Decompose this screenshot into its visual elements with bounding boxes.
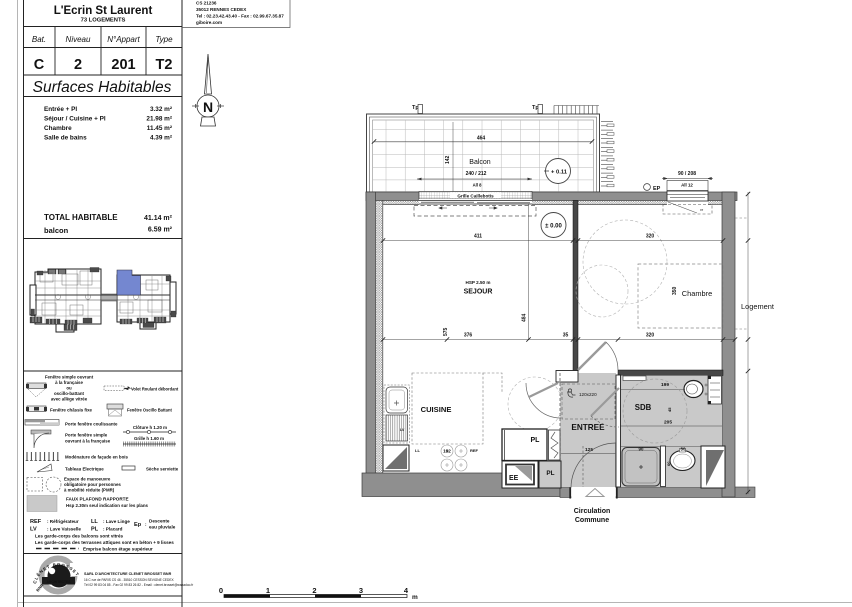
svg-text:Séjour / Cuisine + Pl: Séjour / Cuisine + Pl — [44, 116, 106, 123]
svg-text:C: C — [34, 57, 45, 73]
svg-text:376: 376 — [464, 333, 473, 339]
svg-text:Fenêtre châssis fixe: Fenêtre châssis fixe — [50, 408, 93, 413]
svg-text:11.45 m²: 11.45 m² — [147, 125, 172, 132]
svg-text:LL: LL — [415, 448, 420, 453]
svg-text:Fenêtre simple ouvrant: Fenêtre simple ouvrant — [45, 375, 94, 380]
svg-text:Porte fenêtre coulissante: Porte fenêtre coulissante — [65, 422, 118, 427]
svg-text:201: 201 — [111, 57, 135, 73]
svg-text:90 / 208: 90 / 208 — [678, 171, 696, 177]
svg-text:6.59 m²: 6.59 m² — [148, 227, 173, 234]
svg-text:142: 142 — [445, 155, 451, 164]
svg-text:REF: REF — [470, 448, 479, 453]
svg-text:411: 411 — [474, 234, 482, 240]
svg-text:1: 1 — [266, 586, 270, 595]
svg-text:Salle de bains: Salle de bains — [44, 135, 87, 142]
svg-text:LV: LV — [30, 527, 37, 533]
svg-text:ENTREE: ENTREE — [571, 423, 605, 432]
svg-text:Commune: Commune — [575, 517, 609, 524]
svg-text:FAUX PLAFOND RAPPORTE: FAUX PLAFOND RAPPORTE — [66, 497, 129, 502]
svg-text:4: 4 — [404, 586, 409, 595]
svg-text:464: 464 — [477, 136, 486, 142]
svg-text:± 0.00: ± 0.00 — [545, 224, 562, 230]
svg-text:Balcon: Balcon — [469, 159, 491, 166]
svg-text:N°Appart: N°Appart — [107, 35, 140, 44]
svg-text:LL: LL — [91, 519, 98, 525]
svg-text:320: 320 — [646, 333, 655, 339]
svg-text:Type: Type — [155, 35, 173, 44]
svg-text:192: 192 — [443, 449, 451, 454]
svg-text:Fenêtre Oscillo Battant: Fenêtre Oscillo Battant — [127, 408, 172, 413]
svg-text:Hsp 2.30m seul indication sur: Hsp 2.30m seul indication sur les plans — [66, 503, 149, 508]
svg-text:N: N — [203, 99, 213, 115]
svg-text:m: m — [412, 594, 418, 601]
svg-text:21.98 m²: 21.98 m² — [146, 116, 172, 123]
svg-text:EE: EE — [509, 475, 519, 482]
svg-text:Modénature de façade en bois: Modénature de façade en bois — [65, 455, 129, 460]
svg-text:Grille h 1.60 m: Grille h 1.60 m — [134, 436, 164, 441]
svg-text:: Lave Vaisselle: : Lave Vaisselle — [47, 527, 81, 532]
svg-text:TOTAL HABITABLE: TOTAL HABITABLE — [44, 213, 118, 222]
svg-text:Clôture h 1.20 m: Clôture h 1.20 m — [133, 425, 167, 430]
svg-text:Emprise balcon étage supérieur: Emprise balcon étage supérieur — [83, 547, 153, 552]
svg-text:90: 90 — [639, 447, 644, 452]
svg-text:60: 60 — [666, 461, 671, 466]
svg-text:T2: T2 — [156, 57, 173, 73]
svg-text:240 / 212: 240 / 212 — [466, 171, 487, 177]
svg-text:2: 2 — [312, 586, 316, 595]
svg-text:320: 320 — [646, 234, 655, 240]
svg-text:2: 2 — [74, 57, 82, 73]
svg-text:Circulation: Circulation — [574, 508, 611, 515]
svg-text:Volet Roulant débordant: Volet Roulant débordant — [131, 387, 179, 392]
svg-text:199: 199 — [661, 382, 669, 388]
svg-text:+ 0.11: + 0.11 — [551, 170, 568, 176]
svg-text:Sèche serviette: Sèche serviette — [146, 467, 179, 472]
svg-text:vr: vr — [700, 208, 704, 212]
svg-text:ARCHITECTES: ARCHITECTES — [46, 580, 71, 584]
svg-text::: : — [145, 522, 147, 527]
svg-text:484: 484 — [522, 313, 528, 322]
svg-text:4.39 m²: 4.39 m² — [150, 135, 172, 142]
svg-text:Espace de manoeuvre: Espace de manoeuvre — [64, 477, 111, 482]
svg-text:SEJOUR: SEJOUR — [464, 289, 493, 296]
svg-text:SARL D'ARCHITECTURE CLENET BRO: SARL D'ARCHITECTURE CLENET BROSSET BNR — [84, 572, 172, 576]
svg-text:PL: PL — [91, 527, 99, 533]
svg-text:Tel : 02.23.42.43.40 - Fax : 0: Tel : 02.23.42.43.40 - Fax : 02.99.67.35… — [196, 14, 284, 19]
svg-text:41.14 m²: 41.14 m² — [144, 215, 173, 222]
svg-text:: Réfrigérateur: : Réfrigérateur — [47, 519, 79, 524]
svg-text:35: 35 — [563, 333, 569, 339]
svg-text:Chambre: Chambre — [44, 125, 72, 132]
svg-text:Les garde-corps des terrasses: Les garde-corps des terrasses attiques s… — [35, 540, 174, 545]
svg-text:EP: EP — [653, 186, 661, 192]
svg-text:45: 45 — [667, 407, 672, 412]
svg-text:120x220: 120x220 — [579, 392, 597, 397]
svg-text:575: 575 — [443, 327, 449, 336]
svg-text:CUISINE: CUISINE — [421, 405, 452, 414]
svg-text:0: 0 — [219, 586, 223, 595]
svg-text:ouvrant à la française: ouvrant à la française — [65, 439, 111, 444]
svg-text:obligatoire pour personnes: obligatoire pour personnes — [64, 482, 121, 487]
svg-text:avec allège vitrée: avec allège vitrée — [51, 397, 88, 402]
svg-text:à mobilité réduite (PMR): à mobilité réduite (PMR) — [64, 488, 115, 493]
svg-text:giboire.com: giboire.com — [196, 20, 222, 25]
svg-text:All 8: All 8 — [473, 183, 483, 188]
svg-text:Descente: Descente — [149, 519, 170, 524]
svg-text:Grille Caillebotis: Grille Caillebotis — [457, 193, 494, 198]
svg-text:80: 80 — [681, 447, 686, 452]
svg-text:350: 350 — [672, 286, 678, 295]
svg-text:Tél 02 99 83 04 85 - Fax 02 99: Tél 02 99 83 04 85 - Fax 02 99 83 26 82 … — [84, 583, 194, 587]
svg-text:35012 RENNES CEDEX: 35012 RENNES CEDEX — [196, 7, 247, 12]
svg-text:L'Ecrin St Laurent: L'Ecrin St Laurent — [54, 5, 153, 17]
svg-text:Ep: Ep — [134, 522, 142, 528]
svg-text:SDB: SDB — [635, 403, 652, 412]
svg-text:205: 205 — [664, 420, 672, 426]
svg-text:Niveau: Niveau — [66, 35, 91, 44]
svg-text:LV: LV — [400, 428, 405, 432]
svg-text:73 LOGEMENTS: 73 LOGEMENTS — [81, 18, 126, 24]
svg-text:: Placard: : Placard — [103, 527, 123, 532]
svg-text:PL: PL — [531, 437, 541, 444]
svg-text:oscillo-battant: oscillo-battant — [54, 391, 85, 396]
svg-text:à la française: à la française — [55, 380, 83, 385]
svg-text:: Lave Linge: : Lave Linge — [103, 519, 130, 524]
svg-text:Entrée + Pl: Entrée + Pl — [44, 106, 77, 113]
svg-text:Porte fenêtre simple: Porte fenêtre simple — [65, 433, 108, 438]
svg-text:balcon: balcon — [44, 226, 69, 235]
svg-text:16 C rue de PARIS CS 46 - 355: 16 C rue de PARIS CS 46 - 35510 CESSON S… — [84, 578, 174, 582]
svg-text:Logement: Logement — [741, 302, 774, 311]
svg-text:Bat.: Bat. — [32, 35, 46, 44]
svg-text:ou: ou — [66, 386, 72, 391]
svg-text:3: 3 — [359, 586, 363, 595]
svg-text:PL: PL — [546, 470, 554, 477]
svg-text:Tableau Electrique: Tableau Electrique — [65, 467, 104, 472]
svg-text:All 12: All 12 — [681, 183, 693, 188]
svg-text:CS 21236: CS 21236 — [196, 1, 217, 6]
svg-text:eau pluviale: eau pluviale — [149, 525, 176, 530]
svg-text:HSP 2.50 m: HSP 2.50 m — [466, 280, 491, 285]
svg-text:Chambre: Chambre — [682, 289, 712, 298]
svg-text:3.32 m²: 3.32 m² — [150, 106, 172, 113]
svg-text:Surfaces Habitables: Surfaces Habitables — [33, 79, 172, 96]
svg-text:REF: REF — [30, 519, 42, 525]
svg-text:Les garde-corps des balcons so: Les garde-corps des balcons sont vitrés — [35, 534, 124, 539]
